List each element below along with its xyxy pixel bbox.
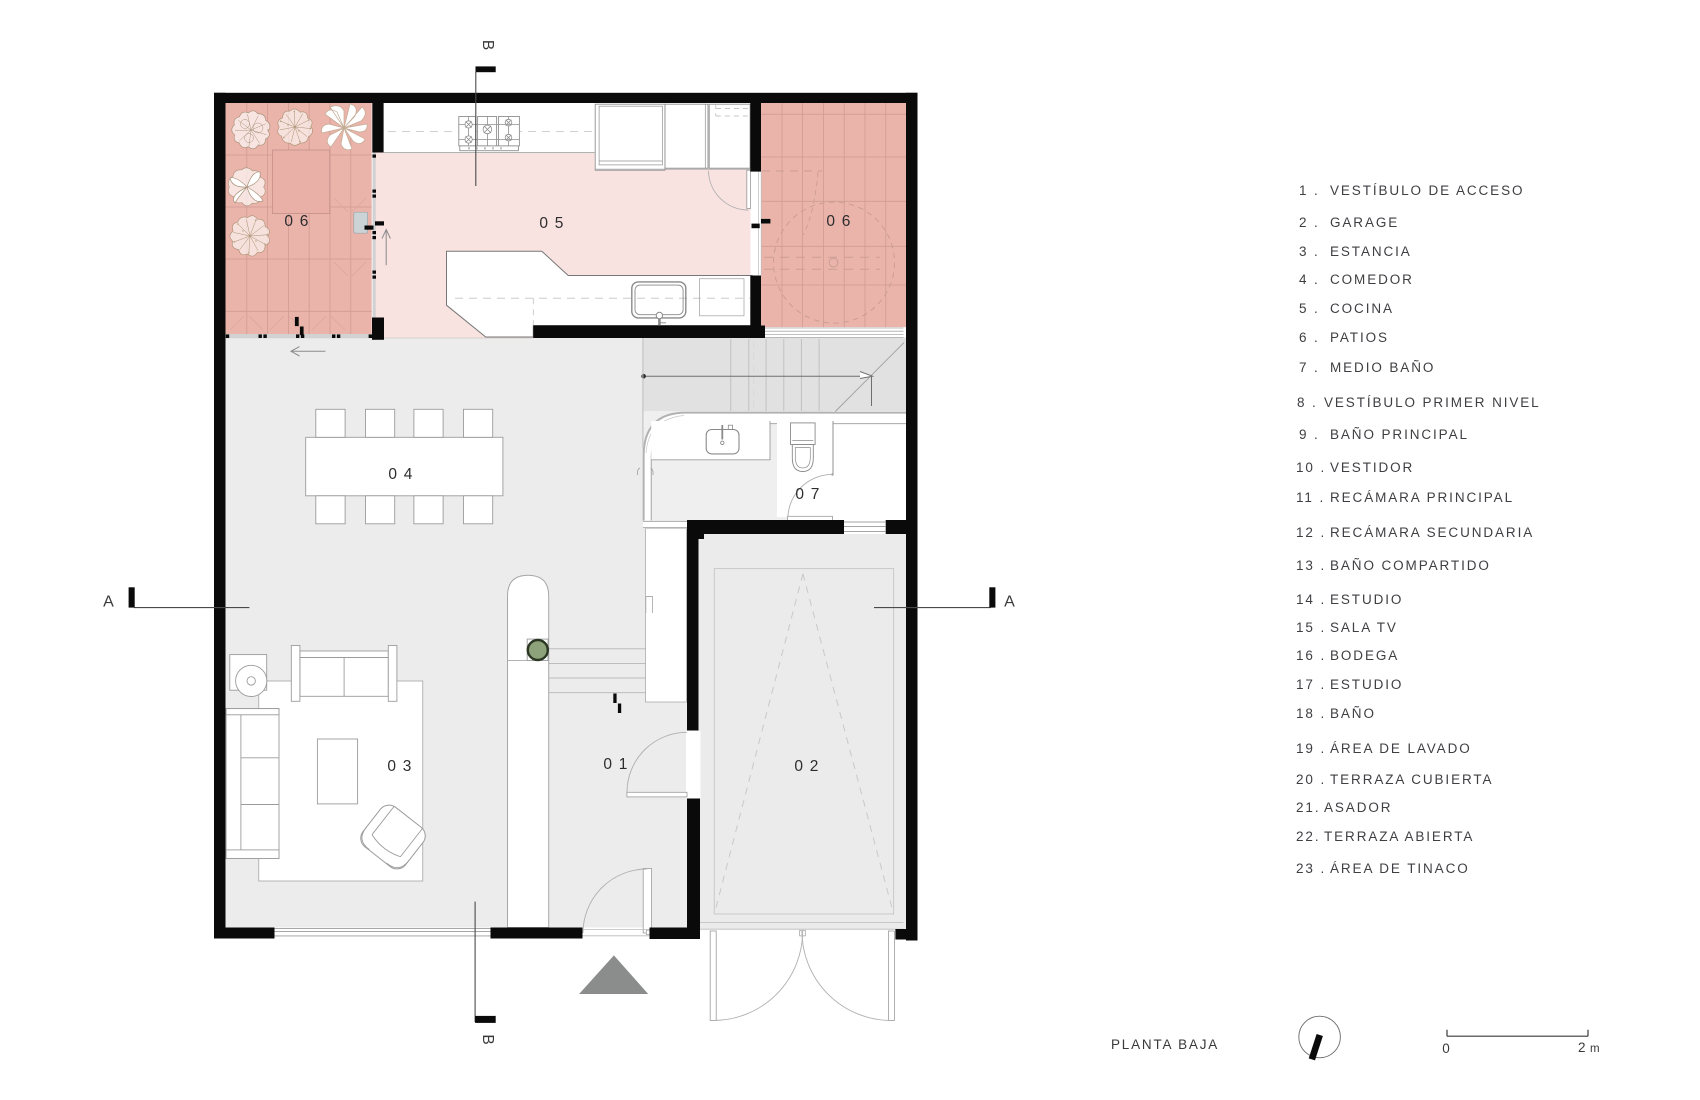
- svg-text:0 6: 0 6: [284, 213, 309, 230]
- svg-text:0 3: 0 3: [387, 758, 412, 775]
- svg-text:0: 0: [1442, 1041, 1450, 1056]
- svg-text:A: A: [1004, 594, 1015, 611]
- svg-text:0 2: 0 2: [794, 758, 819, 775]
- svg-text:m: m: [1590, 1043, 1600, 1055]
- svg-text:0 1: 0 1: [603, 756, 628, 773]
- svg-text:2: 2: [1578, 1040, 1586, 1055]
- svg-text:A: A: [103, 594, 114, 611]
- svg-text:0 4: 0 4: [388, 466, 413, 483]
- svg-text:B: B: [479, 40, 496, 50]
- svg-text:0 6: 0 6: [826, 213, 851, 230]
- svg-text:B: B: [479, 1034, 496, 1044]
- svg-text:PLANTA BAJA: PLANTA BAJA: [1111, 1037, 1219, 1052]
- svg-text:0 5: 0 5: [539, 215, 564, 232]
- svg-text:0 7: 0 7: [795, 486, 820, 503]
